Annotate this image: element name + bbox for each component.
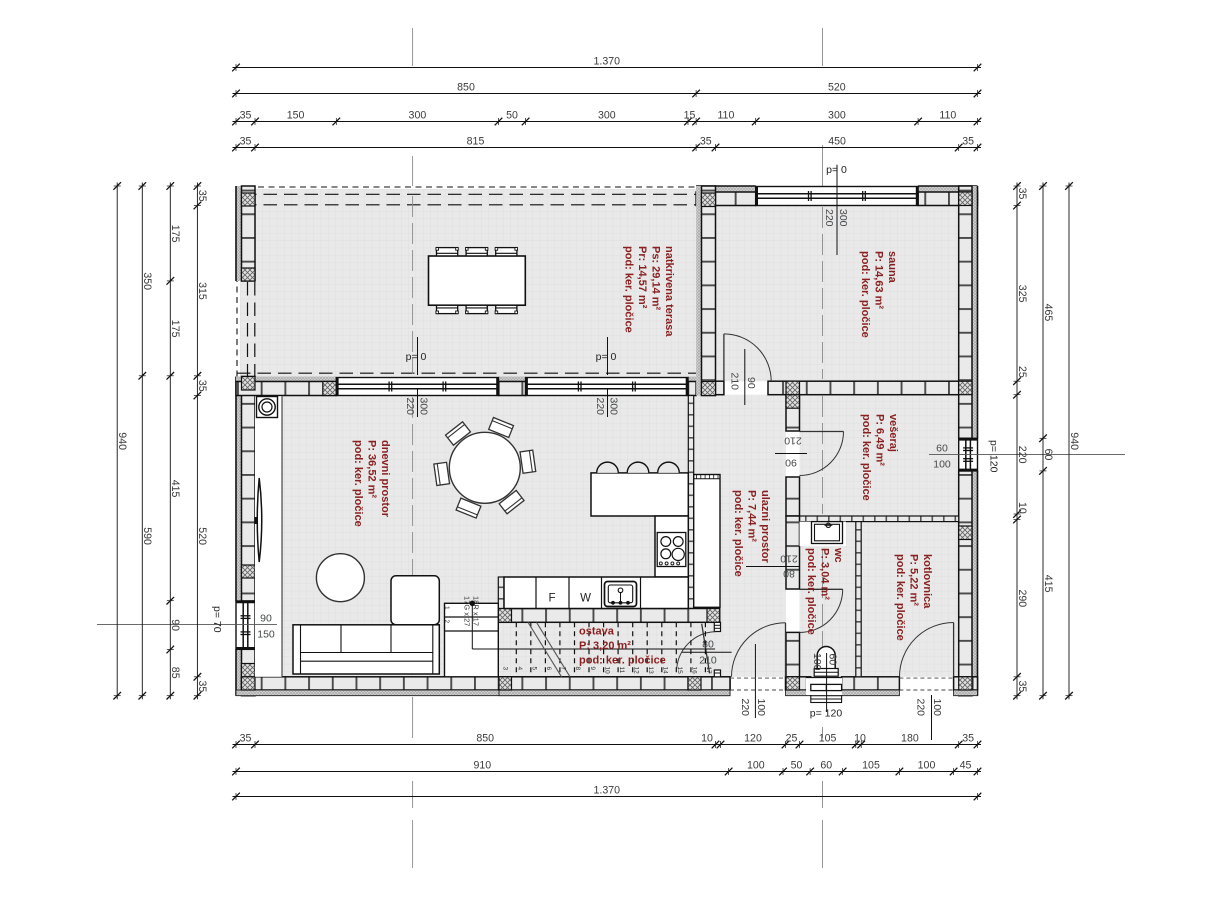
svg-text:850: 850 (457, 82, 475, 94)
svg-text:175: 175 (169, 225, 181, 243)
svg-text:p= 0: p= 0 (596, 351, 617, 363)
svg-text:210: 210 (729, 373, 741, 391)
svg-text:natkrivena terasa: natkrivena terasa (663, 246, 675, 337)
svg-text:35: 35 (1016, 188, 1028, 200)
svg-text:100: 100 (931, 699, 943, 717)
svg-text:P: 3,04 m²: P: 3,04 m² (819, 548, 831, 600)
svg-text:1: 1 (443, 606, 450, 610)
svg-text:220: 220 (594, 398, 606, 416)
svg-text:150: 150 (257, 629, 275, 641)
svg-text:P: 7,44 m²: P: 7,44 m² (746, 490, 758, 542)
svg-text:p= 0: p= 0 (406, 351, 427, 363)
svg-text:35: 35 (1016, 681, 1028, 693)
svg-text:300: 300 (598, 110, 616, 122)
svg-text:105: 105 (819, 733, 837, 745)
svg-text:35: 35 (962, 136, 974, 148)
svg-text:2: 2 (443, 620, 450, 624)
svg-text:180: 180 (901, 733, 919, 745)
svg-text:10: 10 (854, 733, 866, 745)
svg-text:80: 80 (783, 568, 795, 580)
svg-text:8: 8 (574, 667, 581, 671)
svg-text:35: 35 (240, 110, 252, 122)
svg-text:15: 15 (676, 667, 683, 675)
svg-text:p= 70: p= 70 (211, 606, 223, 633)
svg-text:220: 220 (823, 209, 835, 227)
svg-text:25: 25 (1016, 366, 1028, 378)
svg-text:P: 6,49 m²: P: 6,49 m² (874, 414, 886, 466)
svg-text:590: 590 (141, 527, 153, 545)
svg-text:kotlovnica: kotlovnica (921, 554, 933, 609)
svg-text:vešeraj: vešeraj (887, 414, 899, 452)
svg-text:10: 10 (603, 667, 610, 675)
svg-text:pod: ker. pločice: pod: ker. pločice (732, 490, 744, 577)
svg-text:100: 100 (747, 760, 765, 772)
svg-text:wc: wc (832, 547, 844, 563)
svg-text:110: 110 (717, 110, 734, 122)
svg-text:120: 120 (744, 733, 762, 745)
svg-text:pod: ker. pločice: pod: ker. pločice (859, 251, 871, 338)
svg-text:p= 120: p= 120 (810, 708, 843, 720)
svg-text:105: 105 (862, 760, 880, 772)
svg-text:50: 50 (506, 110, 518, 122)
svg-text:290: 290 (1016, 590, 1028, 608)
svg-text:940: 940 (1068, 432, 1080, 450)
svg-text:3: 3 (502, 667, 509, 671)
svg-text:P: 3,20 m²: P: 3,20 m² (579, 640, 631, 652)
svg-text:7: 7 (560, 667, 567, 671)
svg-text:910: 910 (473, 760, 491, 772)
svg-text:ulazni prostor: ulazni prostor (759, 490, 771, 563)
svg-text:100: 100 (933, 459, 951, 471)
svg-text:175: 175 (169, 320, 181, 338)
svg-text:220: 220 (404, 398, 416, 416)
svg-text:210: 210 (780, 553, 798, 565)
svg-text:465: 465 (1042, 304, 1054, 322)
svg-text:50: 50 (791, 760, 803, 772)
svg-text:11: 11 (618, 667, 625, 674)
svg-text:p= 0: p= 0 (826, 164, 847, 176)
svg-text:14: 14 (662, 667, 669, 675)
svg-text:15: 15 (684, 110, 696, 122)
svg-text:520: 520 (196, 527, 208, 545)
svg-text:210: 210 (784, 435, 802, 447)
svg-text:16: 16 (691, 667, 698, 675)
svg-text:35: 35 (196, 190, 208, 202)
svg-text:850: 850 (476, 733, 494, 745)
svg-text:9: 9 (589, 667, 596, 671)
svg-text:325: 325 (1016, 285, 1028, 303)
svg-text:F: F (548, 593, 555, 605)
svg-text:300: 300 (418, 398, 430, 416)
svg-text:10: 10 (701, 733, 713, 745)
svg-text:10: 10 (1016, 502, 1028, 514)
svg-text:p= 120: p= 120 (988, 440, 1000, 473)
svg-text:1.370: 1.370 (594, 785, 621, 797)
svg-text:90: 90 (260, 613, 272, 625)
svg-text:60: 60 (936, 443, 948, 455)
svg-text:pod: ker. pločice: pod: ker. pločice (894, 554, 906, 641)
svg-text:35: 35 (962, 733, 974, 745)
svg-text:300: 300 (409, 110, 427, 122)
svg-text:60: 60 (826, 654, 838, 666)
svg-text:12: 12 (633, 667, 640, 675)
svg-text:pod: ker. pločice: pod: ker. pločice (579, 655, 666, 667)
svg-text:35: 35 (240, 136, 252, 148)
svg-text:13: 13 (647, 667, 654, 675)
svg-text:450: 450 (828, 136, 846, 148)
svg-text:210: 210 (699, 654, 717, 666)
svg-text:220: 220 (1016, 446, 1028, 464)
svg-text:85: 85 (169, 667, 181, 679)
svg-text:520: 520 (828, 82, 846, 94)
svg-text:17G x 27: 17G x 27 (462, 596, 471, 626)
svg-text:150: 150 (287, 110, 305, 122)
svg-text:25: 25 (786, 733, 798, 745)
svg-text:940: 940 (116, 432, 128, 450)
svg-text:P: 36,52 m²: P: 36,52 m² (366, 440, 378, 498)
svg-text:35: 35 (700, 136, 712, 148)
svg-text:90: 90 (745, 377, 757, 389)
svg-text:350: 350 (141, 272, 153, 290)
svg-text:220: 220 (915, 699, 927, 717)
svg-text:220: 220 (739, 699, 751, 717)
svg-text:pod: ker. pločice: pod: ker. pločice (352, 440, 364, 527)
svg-text:110: 110 (939, 110, 956, 122)
svg-text:ostava: ostava (579, 626, 615, 638)
svg-text:pod: ker. pločice: pod: ker. pločice (623, 246, 635, 333)
svg-text:pod: ker. pločice: pod: ker. pločice (805, 548, 817, 635)
svg-text:dnevni prostor: dnevni prostor (379, 440, 391, 518)
svg-text:Ps: 29,14 m²: Ps: 29,14 m² (650, 246, 662, 311)
svg-text:45: 45 (960, 760, 972, 772)
svg-text:415: 415 (1042, 575, 1054, 593)
svg-text:100: 100 (755, 699, 767, 717)
svg-text:5: 5 (531, 667, 538, 671)
svg-text:Pr: 14,57 m²: Pr: 14,57 m² (636, 246, 648, 309)
svg-text:1.370: 1.370 (594, 56, 621, 68)
svg-text:90: 90 (169, 619, 181, 631)
svg-text:35: 35 (240, 733, 252, 745)
svg-text:415: 415 (169, 480, 181, 498)
svg-text:300: 300 (828, 110, 846, 122)
svg-text:4: 4 (516, 667, 523, 671)
svg-text:60: 60 (1042, 449, 1054, 461)
svg-text:35: 35 (196, 681, 208, 693)
svg-text:300: 300 (608, 398, 620, 416)
svg-text:P: 14,63 m²: P: 14,63 m² (873, 251, 885, 309)
svg-text:35: 35 (196, 380, 208, 392)
svg-text:90: 90 (785, 457, 797, 469)
svg-text:sauna: sauna (886, 251, 898, 284)
svg-text:6: 6 (545, 667, 552, 671)
svg-text:pod: ker. pločice: pod: ker. pločice (860, 414, 872, 501)
svg-text:300: 300 (837, 209, 849, 227)
svg-text:100: 100 (918, 760, 936, 772)
svg-text:W: W (580, 593, 591, 605)
svg-text:P: 5,22 m²: P: 5,22 m² (908, 554, 920, 606)
svg-text:80: 80 (702, 638, 714, 650)
svg-text:315: 315 (196, 282, 208, 300)
svg-text:60: 60 (820, 760, 832, 772)
svg-text:100: 100 (811, 653, 823, 671)
svg-text:815: 815 (467, 136, 485, 148)
svg-text:17: 17 (705, 667, 712, 675)
